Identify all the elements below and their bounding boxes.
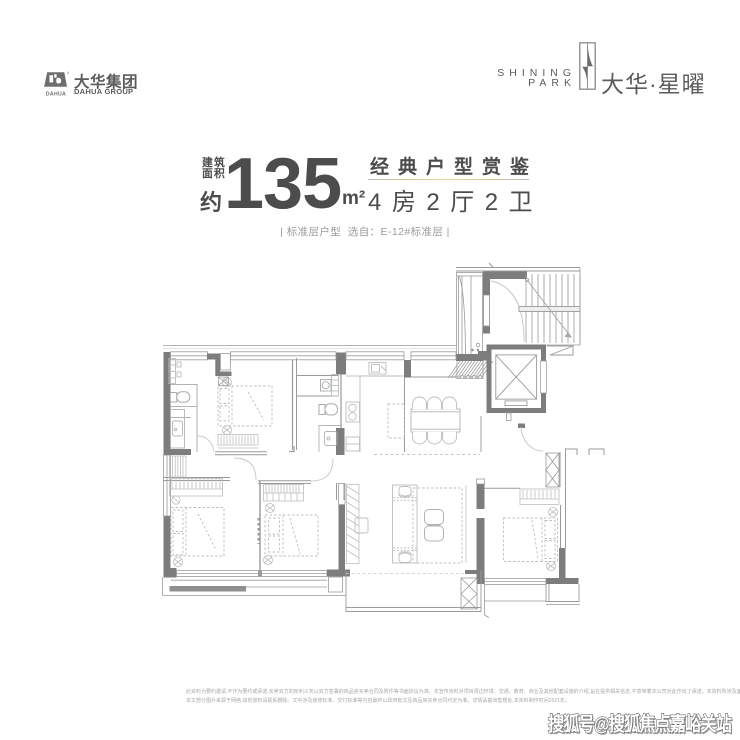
svg-text:搜狐号@搜狐焦点嘉峪关站: 搜狐号@搜狐焦点嘉峪关站 xyxy=(548,712,732,735)
